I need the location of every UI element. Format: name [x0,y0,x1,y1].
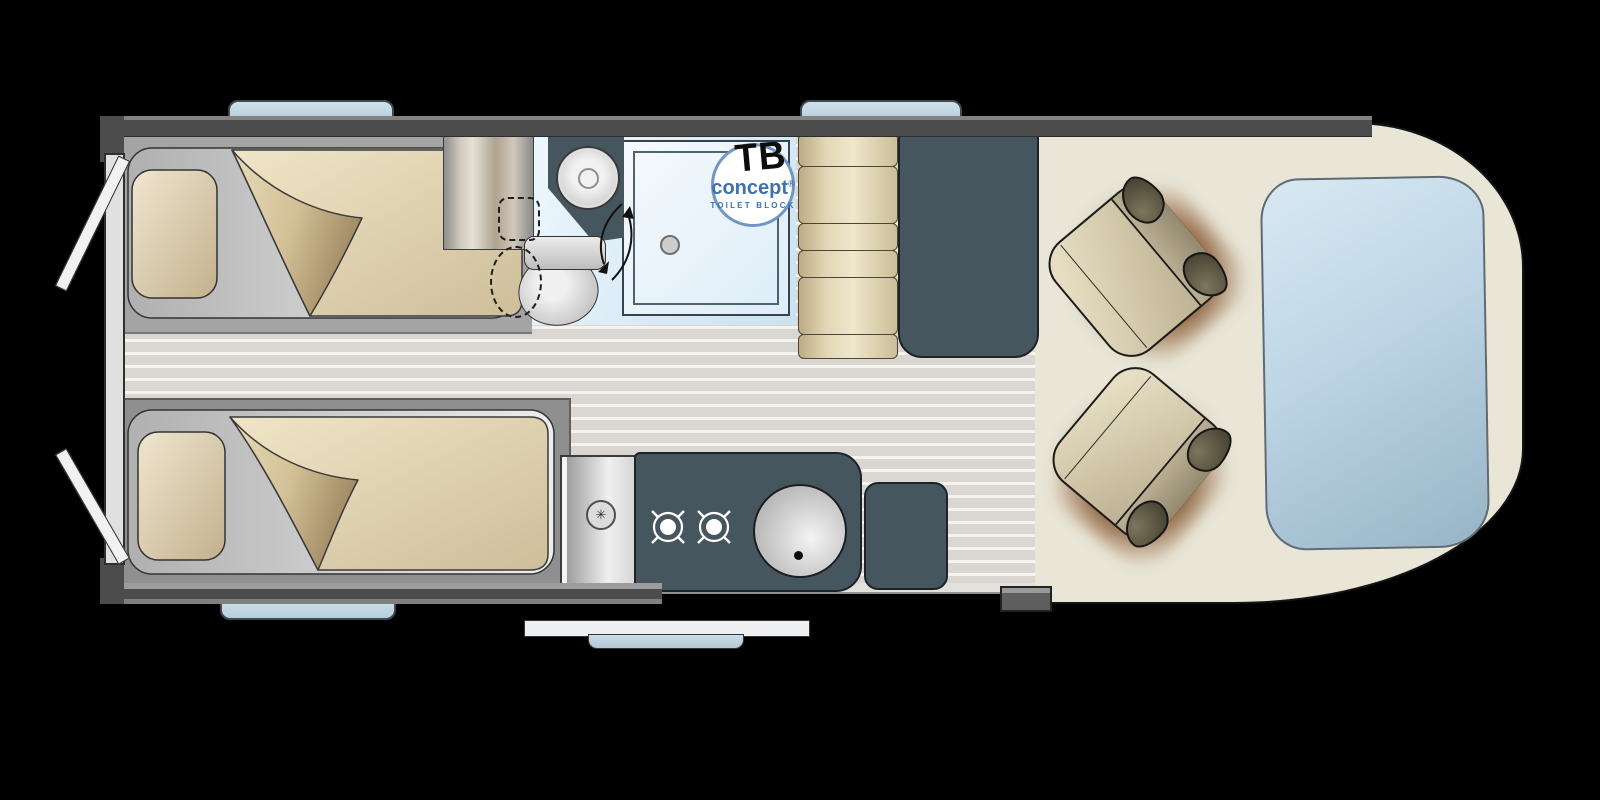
top-bed-pillow [132,170,217,298]
kitchen-symbol-icon: ✳ [586,500,616,530]
registered-mark: ® [788,178,795,188]
bench-cushion [798,250,898,278]
bench-cushion [798,277,898,335]
bottom-single-bed [122,398,567,585]
front-bed [1260,175,1490,551]
logo-tb-text: TB [733,133,788,181]
swivel-wall-dashed-position-2 [490,246,542,318]
hob-burner-icon [646,505,690,549]
campervan-floorplan: TB concept® TOILET BLOCK ✳ [0,0,1600,800]
fridge-unit [864,482,948,590]
shower-drain-icon [660,235,680,255]
entry-step [1000,586,1052,612]
top-wall [100,116,1372,137]
bench-cushion [798,166,898,224]
bench-cushion [798,223,898,251]
bench-cushion [798,133,898,167]
dinette-bench [798,134,898,359]
sink-drain-icon [794,551,803,560]
toilet-block-logo: TB concept® TOILET BLOCK [707,139,799,231]
kitchen-sink-icon [753,484,847,578]
washbasin-drain-icon [578,168,599,189]
swivel-wall-arrows-icon [578,198,644,286]
swivel-wall-dashed-position-1 [498,197,540,241]
bottom-wall [100,583,662,604]
bench-cushion [798,334,898,359]
logo-subtitle-text: TOILET BLOCK [707,201,799,210]
logo-concept-text: concept® [707,177,799,200]
dinette-table-unit [898,134,1039,358]
bottom-bed-pillow [138,432,225,560]
rear-door-panel [104,153,125,565]
hob-burner-icon [692,505,736,549]
sliding-door-window [588,634,744,649]
